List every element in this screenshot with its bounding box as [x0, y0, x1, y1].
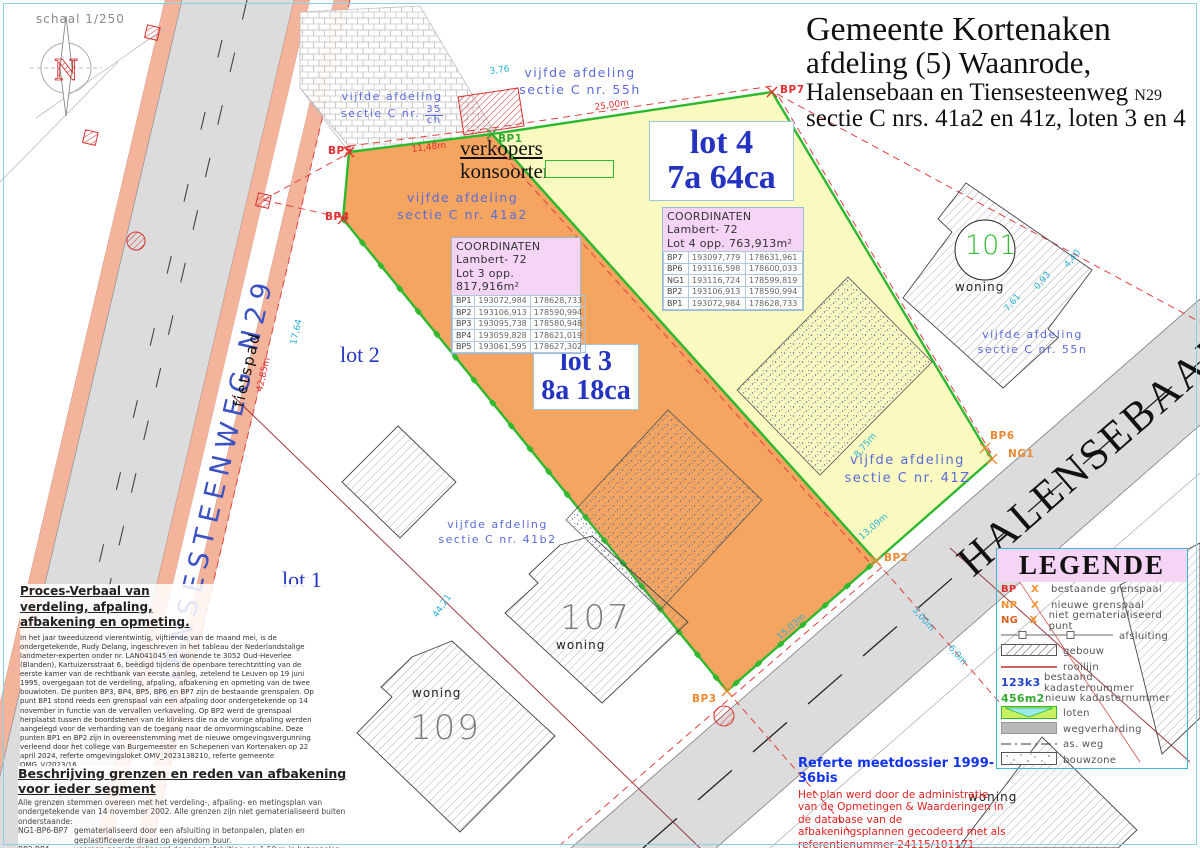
parcel-41b2: vijfde afdeling sectie C nr. 41b2 [420, 518, 575, 548]
house-107-woning: woning [556, 638, 605, 652]
table-row: BP2193106,913178590,994 [664, 286, 803, 298]
house-109-number: 109 [410, 708, 481, 748]
legend-item-afsluiting: afsluiting [997, 629, 1187, 645]
title-line1: Gemeente Kortenaken [806, 12, 1196, 47]
table4-title: COORDINATEN [667, 210, 799, 223]
scale-label: schaal 1/250 [36, 12, 125, 26]
cadastral-plan-page: N TIENSESTEENWEG N29 fietspad HALENSEBAA… [0, 0, 1200, 848]
segment-ng1-bp6-bp7: NG1-BP6-BP7gematerialiseerd door een afs… [18, 826, 366, 845]
legend-item-bp: BPX bestaande grenspaal [997, 582, 1187, 598]
title-line3-main: Halensebaan en Tiensesteenweg [806, 79, 1128, 106]
parcel-55h: vijfde afdeling sectie C nr. 55h [500, 65, 660, 99]
referte-body: Het plan werd door de administratie van … [798, 789, 1006, 848]
proces-verbaal-title: Proces-Verbaal van verdeling, afpaling, … [20, 584, 200, 631]
loten-swatch [1001, 706, 1057, 722]
manhole-marker [714, 706, 734, 726]
dim-6-0: 6,0m [946, 643, 969, 667]
compass-north-letter: N [54, 51, 77, 87]
lot2-label: lot 2 [340, 342, 380, 368]
legend-item-bestaand-kadaster: 123k3 bestaand kadasternummer [997, 675, 1187, 691]
legend-item-loten: loten [997, 706, 1187, 722]
referte-title: Referte meetdossier 1999-36bis [798, 756, 1006, 786]
house-107-number: 107 [560, 598, 631, 638]
house-109-woning: woning [412, 686, 461, 700]
parcel-41a2: vijfde afdeling sectie C nr. 41a2 [380, 190, 545, 224]
table-row: BP1193072,984178628,733 [664, 298, 803, 310]
legend-item-gebouw: gebouw [997, 644, 1187, 660]
table-row: BP6193116,598178600,033 [664, 263, 803, 275]
asweg-symbol [1001, 739, 1057, 750]
dim-17-64: 17,64 [289, 318, 305, 346]
proces-verbaal-body: In het jaar tweeduizend vierentwintig, v… [20, 634, 314, 770]
title-line3: Halensebaan en Tiensesteenweg N29 [806, 80, 1196, 106]
point-label-bp2: BP2 [884, 552, 909, 564]
point-label-bp3: BP3 [692, 693, 717, 705]
point-label-ng1: NG1 [1008, 448, 1034, 460]
proces-verbaal-block: Proces-Verbaal van verdeling, afpaling, … [20, 584, 314, 770]
gebouw-swatch [1001, 644, 1057, 659]
compass-icon: N [30, 16, 102, 116]
manhole-marker [127, 232, 145, 250]
title-block: Gemeente Kortenaken afdeling (5) Waanrod… [806, 12, 1196, 132]
parcel-41z: vijfde afdeling sectie C nr. 41Z [825, 452, 990, 487]
point-label-bp1: BP1 [498, 133, 523, 145]
title-line2: afdeling (5) Waanrode, [806, 47, 1196, 79]
lot4-label: lot 4 7a 64ca [649, 121, 794, 201]
beschrijving-intro: Alle grenzen stemmen overeen met het ver… [18, 798, 366, 826]
point-label-bp5: BP5 [328, 145, 353, 157]
table3-title: COORDINATEN [456, 240, 576, 253]
table-row: BP7193097,779178631,961 [664, 252, 803, 264]
table-row: BP2193106,913178590,994 [453, 307, 586, 319]
parcel-35ch-fraction: 35ch [425, 105, 443, 126]
beschrijving-block: Beschrijving grenzen en reden van afbake… [18, 766, 366, 848]
bouwzone-swatch [1001, 752, 1057, 768]
table-row: BP3193095,738178580,948 [453, 318, 586, 330]
title-line4: sectie C nrs. 41a2 en 41z, loten 3 en 4 [806, 106, 1196, 132]
beschrijving-title: Beschrijving grenzen en reden van afbake… [18, 766, 366, 796]
table-row: BP1193072,984178628,733 [453, 295, 586, 307]
coordinates-table-lot3: COORDINATEN Lambert- 72 Lot 3 opp. 817,9… [451, 237, 581, 354]
table-row: BP5193061,595178627,302 [453, 341, 586, 353]
referte-block: Referte meetdossier 1999-36bis Het plan … [798, 756, 1006, 848]
point-label-bp6: BP6 [990, 430, 1015, 442]
wegverharding-swatch [1001, 722, 1057, 737]
dim-25-00: 25,00m [594, 98, 630, 113]
title-line3-suffix: N29 [1134, 87, 1162, 104]
fence-symbol [1001, 630, 1113, 643]
legend-item-wegverharding: wegverharding [997, 722, 1187, 738]
point-label-bp4: BP4 [325, 211, 350, 223]
legend: LEGENDE BPX bestaande grenspaal NPX nieu… [996, 548, 1188, 769]
parcel-35ch: vijfde afdeling sectie C nr. 35ch [312, 90, 472, 126]
legend-item-bouwzone: bouwzone [997, 753, 1187, 769]
coordinates-table-lot4: COORDINATEN Lambert- 72 Lot 4 opp. 763,9… [662, 207, 804, 311]
house-101-number: 101 [965, 230, 1005, 261]
table-row: NG1193116,724178599,819 [664, 275, 803, 287]
parcel-55n: vijfde afdeling sectie C nr. 55n [955, 328, 1110, 358]
legend-item-asweg: as. weg [997, 737, 1187, 753]
legend-item-nieuw-kadaster: 456m2 nieuw kadasternummer [997, 691, 1187, 707]
legend-title: LEGENDE [997, 549, 1187, 582]
table-row: BP4193059,828178621,019 [453, 330, 586, 342]
loten-swatch-inline [545, 160, 614, 178]
legend-item-ng: NGX niet gematerialiseerd punt [997, 613, 1187, 629]
point-label-bp7: BP7 [780, 84, 805, 96]
house-101-woning: woning [955, 280, 1004, 294]
